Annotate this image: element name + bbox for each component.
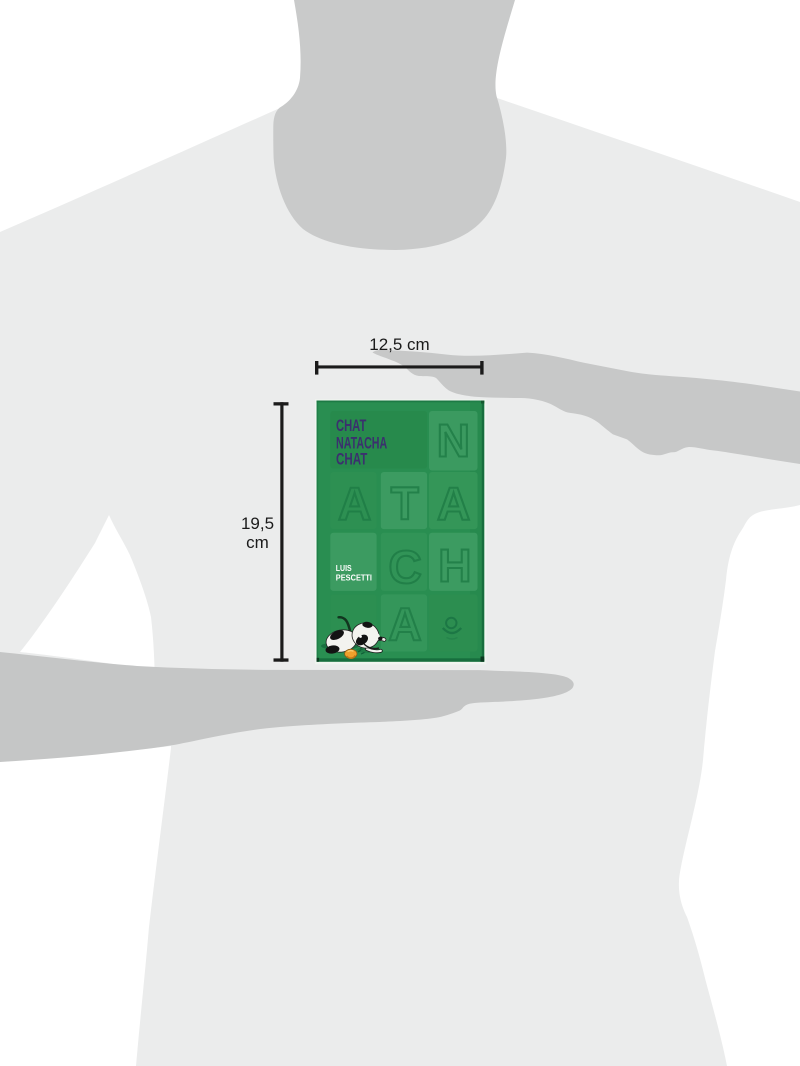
- svg-text:PESCETTI: PESCETTI: [336, 572, 372, 582]
- svg-text:LUIS: LUIS: [336, 563, 352, 573]
- svg-text:C: C: [389, 541, 422, 593]
- svg-text:A: A: [388, 598, 421, 650]
- svg-text:cm: cm: [246, 533, 269, 552]
- svg-text:19,5: 19,5: [241, 514, 274, 533]
- svg-text:CHAT: CHAT: [336, 451, 367, 469]
- svg-text:A: A: [338, 478, 371, 530]
- svg-text:CHAT: CHAT: [336, 417, 366, 435]
- svg-text:N: N: [437, 415, 470, 467]
- svg-text:12,5 cm: 12,5 cm: [369, 335, 429, 354]
- svg-text:T: T: [391, 478, 419, 530]
- svg-text:H: H: [438, 540, 471, 592]
- svg-text:A: A: [437, 478, 470, 530]
